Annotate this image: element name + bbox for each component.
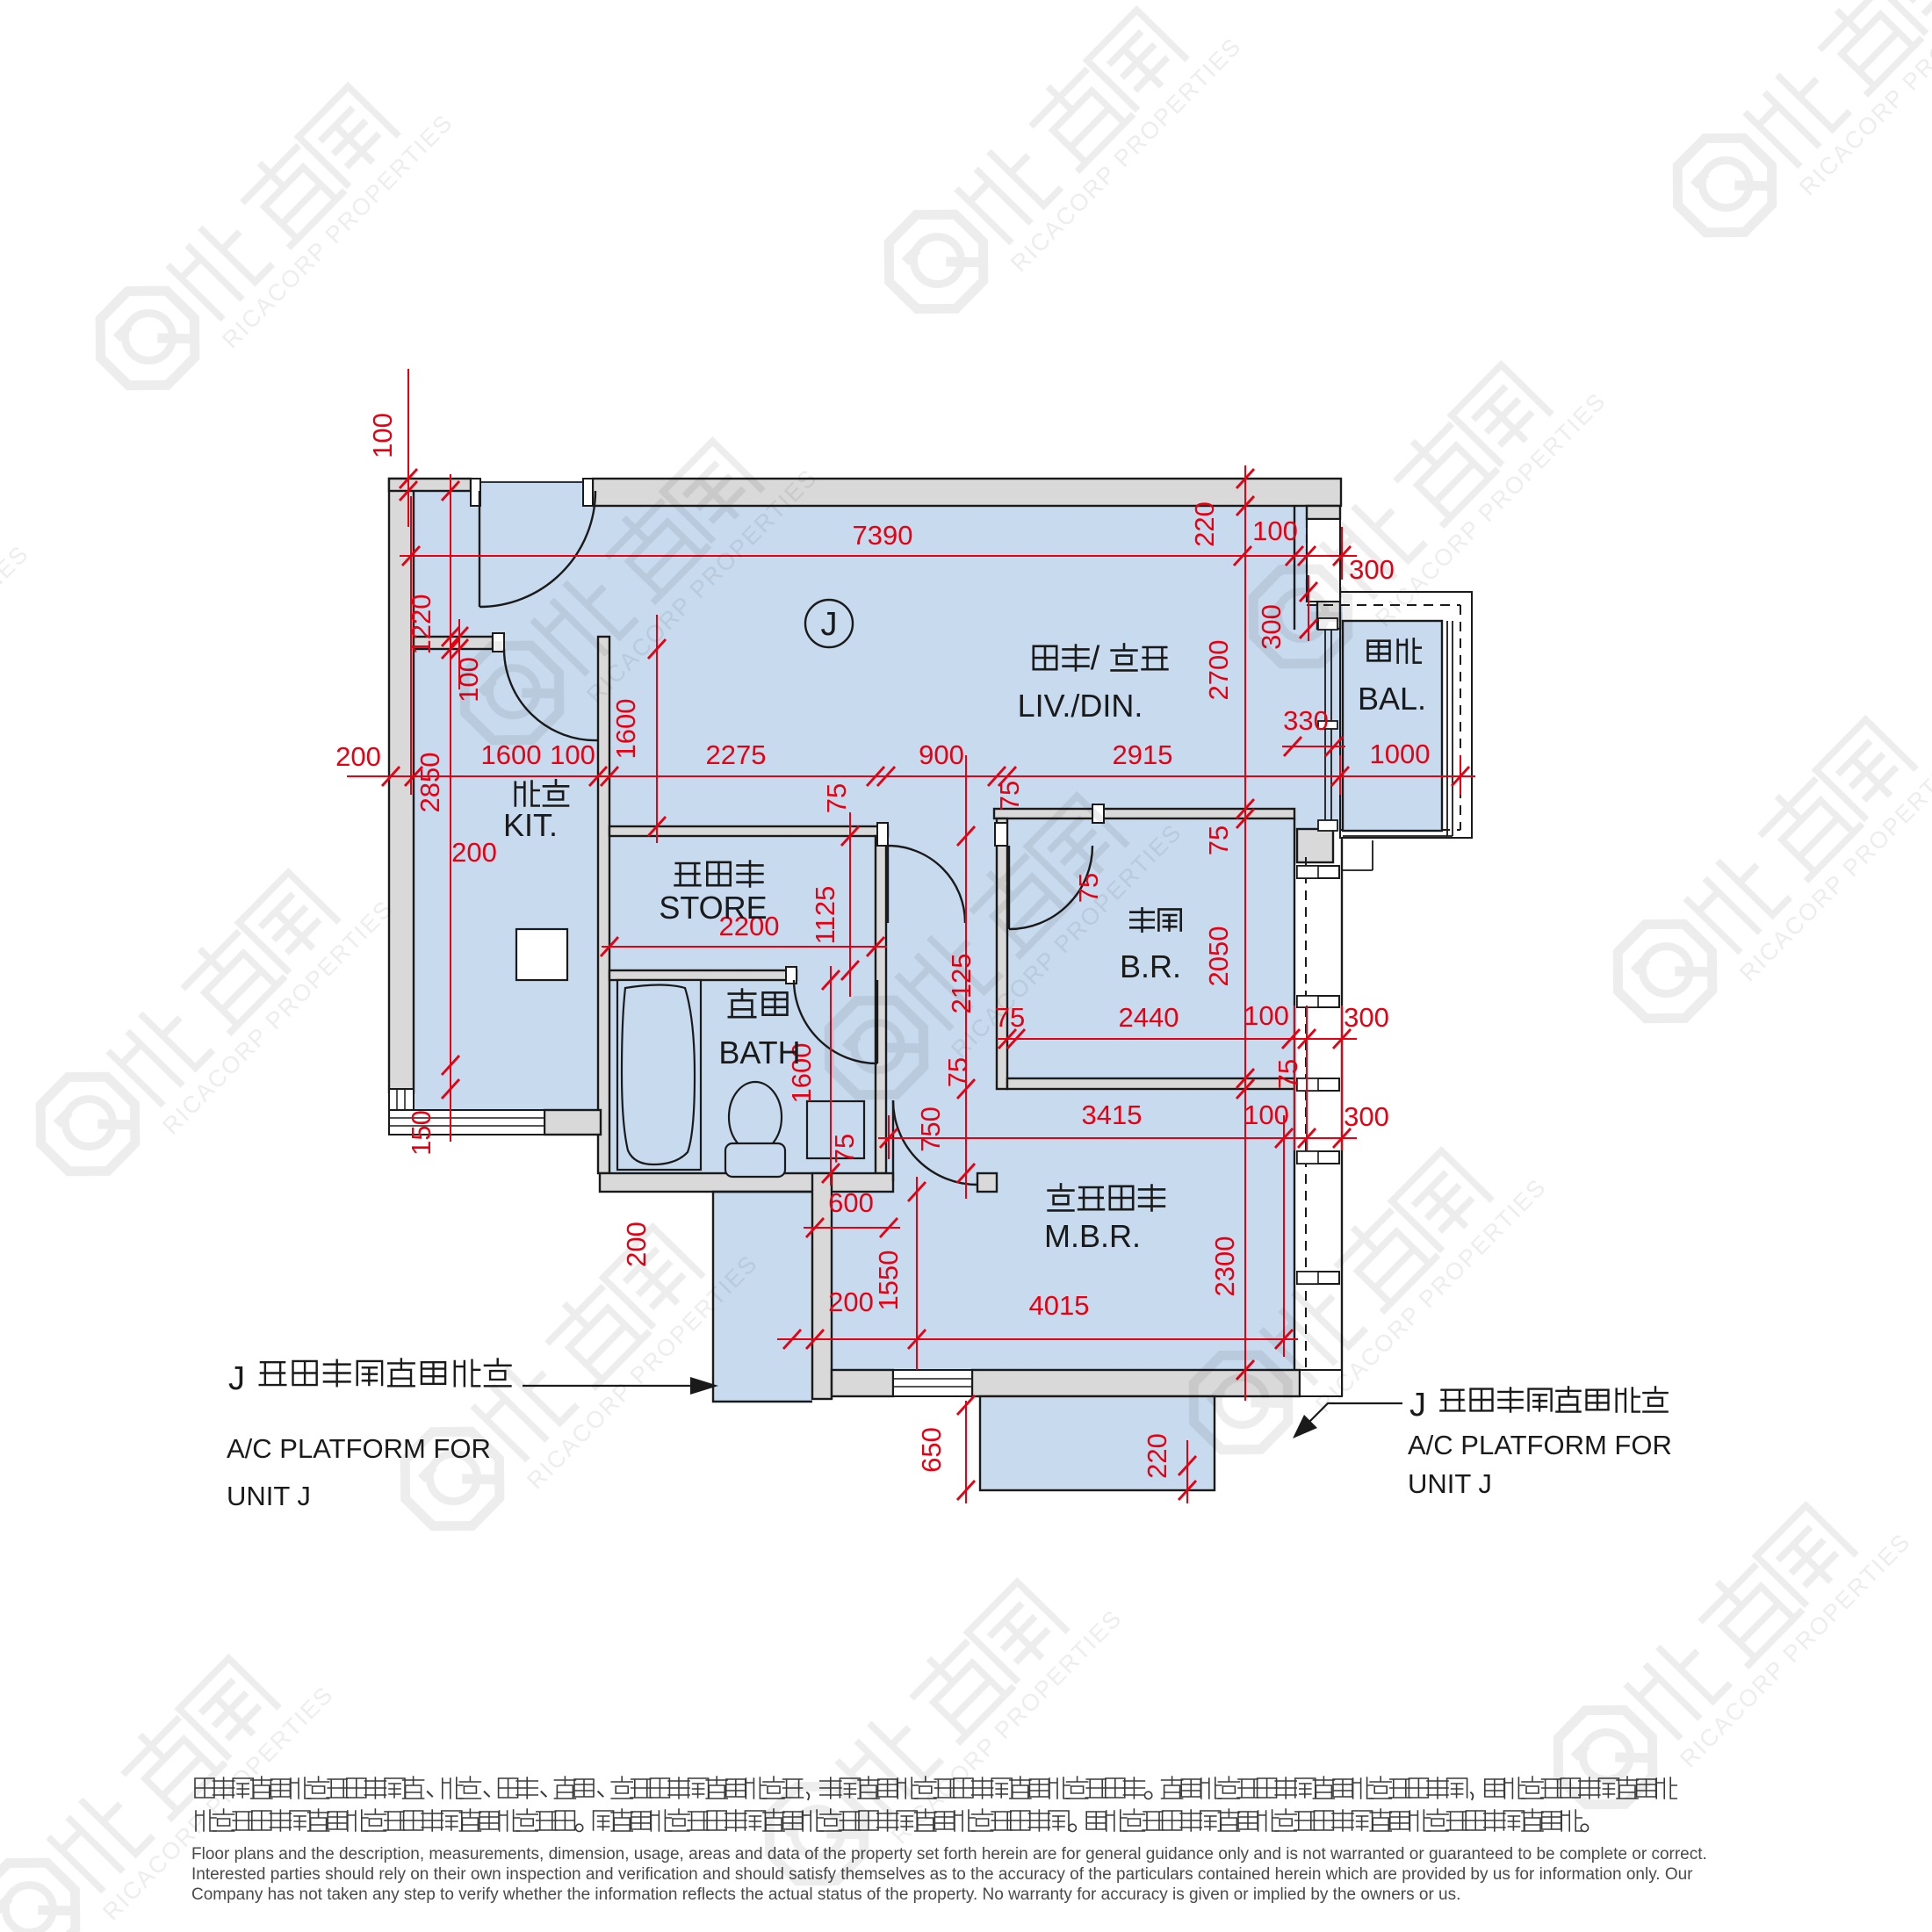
svg-text:A/C PLATFORM FOR: A/C PLATFORM FOR — [1408, 1430, 1672, 1460]
svg-text:220: 220 — [1142, 1433, 1172, 1479]
svg-text:75: 75 — [1272, 1059, 1303, 1089]
svg-text:300: 300 — [1344, 1002, 1389, 1033]
svg-text:2300: 2300 — [1209, 1236, 1240, 1297]
svg-text:750: 750 — [915, 1107, 946, 1152]
svg-text:J: J — [1409, 1387, 1426, 1424]
svg-text:1000: 1000 — [1370, 739, 1431, 769]
svg-text:BATH: BATH — [718, 1034, 800, 1071]
svg-text:Company has not taken any step: Company has not taken any step to verify… — [191, 1885, 1460, 1904]
svg-text:STORE: STORE — [659, 890, 767, 926]
svg-text:75: 75 — [829, 1134, 860, 1164]
svg-text:1600: 1600 — [610, 699, 641, 760]
svg-text:4015: 4015 — [1029, 1290, 1090, 1321]
svg-text:100: 100 — [367, 413, 398, 458]
svg-text:7390: 7390 — [853, 520, 913, 551]
svg-text:J: J — [228, 1360, 245, 1397]
svg-text:75: 75 — [1203, 825, 1234, 855]
svg-text:900: 900 — [919, 739, 964, 770]
svg-text:75: 75 — [942, 1057, 973, 1087]
svg-text:300: 300 — [1344, 1101, 1389, 1132]
svg-text:650: 650 — [916, 1427, 947, 1473]
svg-text:1125: 1125 — [810, 886, 840, 945]
svg-text:BAL.: BAL. — [1358, 681, 1426, 717]
svg-text:2700: 2700 — [1203, 640, 1234, 701]
svg-text:Floor plans and the descriptio: Floor plans and the description, measure… — [191, 1845, 1707, 1864]
svg-text:220: 220 — [1189, 501, 1220, 547]
svg-text:100: 100 — [1252, 515, 1298, 546]
svg-text:150: 150 — [406, 1110, 436, 1156]
svg-text:UNIT J: UNIT J — [1408, 1468, 1492, 1499]
svg-text:100: 100 — [1244, 1099, 1289, 1130]
svg-text:330: 330 — [1283, 705, 1329, 736]
svg-text:600: 600 — [828, 1187, 874, 1218]
svg-text:M.B.R.: M.B.R. — [1044, 1218, 1141, 1254]
svg-text:100: 100 — [550, 739, 595, 770]
svg-text:2850: 2850 — [415, 753, 445, 813]
svg-text:2050: 2050 — [1203, 926, 1234, 987]
svg-text:200: 200 — [451, 837, 497, 868]
svg-text:1550: 1550 — [873, 1251, 904, 1311]
svg-text:1220: 1220 — [406, 595, 436, 655]
svg-text:KIT.: KIT. — [503, 807, 558, 843]
svg-text:100: 100 — [1244, 1000, 1289, 1031]
svg-text:75: 75 — [821, 783, 852, 813]
svg-text:3415: 3415 — [1082, 1099, 1143, 1130]
svg-text:200: 200 — [335, 741, 381, 772]
svg-text:Interested parties should rely: Interested parties should rely on their … — [191, 1865, 1693, 1884]
svg-text:2915: 2915 — [1113, 739, 1173, 770]
svg-text:LIV./DIN.: LIV./DIN. — [1018, 688, 1143, 724]
svg-text:J: J — [821, 606, 838, 643]
svg-text:UNIT J: UNIT J — [227, 1481, 311, 1511]
svg-text:2275: 2275 — [706, 739, 767, 770]
svg-text:200: 200 — [828, 1287, 874, 1317]
svg-text:B.R.: B.R. — [1120, 948, 1181, 984]
svg-text:75: 75 — [994, 781, 1025, 811]
svg-text:2440: 2440 — [1119, 1002, 1179, 1033]
svg-text:A/C PLATFORM FOR: A/C PLATFORM FOR — [227, 1433, 491, 1464]
svg-text:/: / — [1091, 640, 1100, 677]
